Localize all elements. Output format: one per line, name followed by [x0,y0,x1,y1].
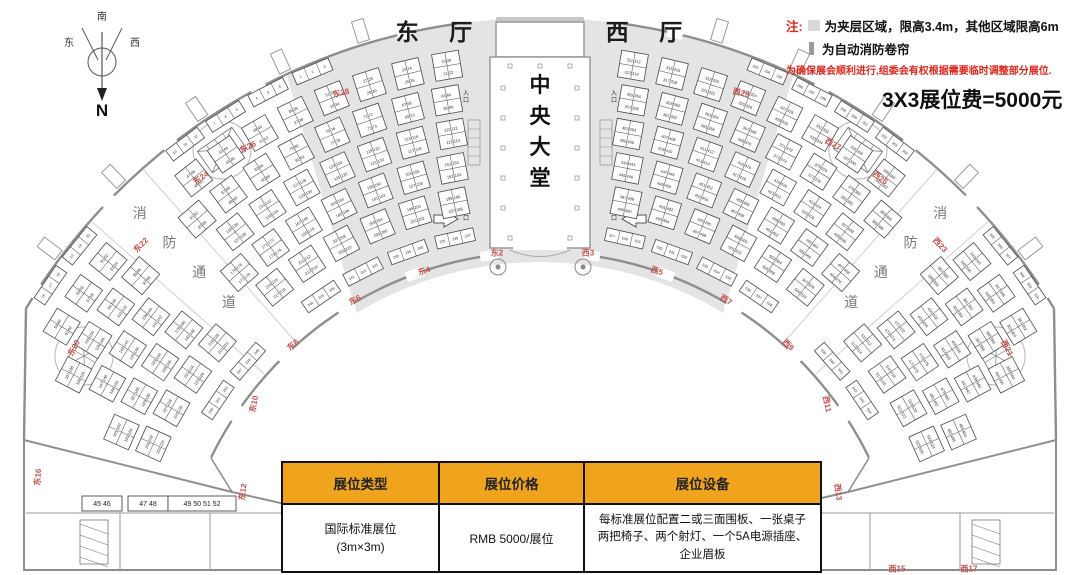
booth-cluster: 63 6465 66 [431,85,462,116]
booth-cluster: 187 188189 190 [121,378,158,415]
booth-cluster: 147 148149 150 [89,365,126,402]
booth-cluster: 375 376377 378 [800,153,837,190]
loading-dock [37,237,62,260]
loading-dock [711,19,729,44]
booth-type-cell: 国际标准展位 (3m×3m) [282,504,439,572]
booth-cluster: 171 172173 174 [252,229,290,267]
booth-cluster: 391 392393 394 [945,288,983,326]
svg-text:通: 通 [874,264,888,280]
booth-fee-text: 3X3展位费=5000元 [882,84,1062,114]
booth-cluster: 379 380381 382 [833,175,871,213]
notes-block: 注: 为夹层区域，限高3.4m，其他区域限高6m 为自动消防卷帘 为确保展会顺利… [786,16,1078,77]
loading-dock [186,96,208,121]
booth-cluster: 219 220221 222 [198,324,236,362]
east-hall-title: 东 厅 [396,13,484,47]
vestibule [496,22,584,57]
booth-cluster: 83 8485 86 [243,153,280,190]
booth-cluster: 511 512513 514 [844,324,882,362]
booth-cluster: 195 196197 198 [438,187,470,219]
booth-cluster: 507 508509 510 [786,268,824,306]
booth-cluster: 523 524525 526 [909,426,945,462]
loading-dock [352,19,370,44]
note-prefix: 注: [786,16,803,35]
booth-cluster: 175 176177 178 [220,253,258,291]
booth-cluster: 487 488489 490 [610,187,642,219]
loading-dock [955,164,979,188]
svg-text:口: 口 [611,215,617,222]
svg-text:消: 消 [933,205,947,221]
gate-label-西3: 西3 [582,248,594,259]
svg-text:49 50 51 52: 49 50 51 52 [184,501,221,508]
booth-row: 250251252 [202,380,235,420]
compass-needle-icon [97,88,107,101]
booth-cluster: 167 168169 170 [285,207,322,244]
booth-cluster: 463 464465 466 [790,229,828,267]
booth-cluster: 227 228229 230 [153,390,190,427]
booth-cluster: 23 2425 26 [392,57,425,90]
note-mezzanine: 为夹层区域，限高3.4m，其他区域限高6m [825,16,1059,35]
gate-label-东16: 东16 [32,468,44,486]
booth-cluster: 515 516517 518 [868,356,906,394]
booth-cluster: 99 100101 102 [97,288,135,326]
booth-cluster: 403 404405 406 [613,118,644,149]
booth-cluster: 183 184185 186 [141,343,178,380]
svg-text:45 46: 45 46 [93,501,111,508]
svg-text:防: 防 [904,234,918,250]
booth-cluster: 459 460461 462 [757,207,794,244]
exhibition-floorplan: 消防通道消防通道入口入口入口入口45 4647 4849 50 51 52123… [0,0,1080,575]
booth-cluster: 139 140141 142 [132,298,170,336]
booth-cluster: 427 428429 430 [826,213,864,251]
loading-dock [1018,237,1043,260]
compass: 南 东 西 N [52,8,152,118]
svg-text:口: 口 [611,97,617,104]
booth-cluster: 311 312313 314 [617,50,648,81]
svg-text:口: 口 [463,97,469,104]
booth-cluster: 231 232233 234 [136,426,172,462]
booth-cluster: 387 388389 390 [920,257,958,295]
compass-south-label: 南 [97,10,107,23]
booth-cluster: 471 472473 474 [877,311,915,349]
booth-cluster: 191 192193 194 [104,414,140,450]
booth-row: 542543544 [846,380,879,420]
booth-cluster: 519 520521 522 [890,390,927,427]
booth-cluster: 95 9697 98 [122,257,160,295]
booth-cluster: 55 5657 58 [65,274,103,312]
compass-west-label: 西 [130,38,140,49]
table-row: 国际标准展位 (3m×3m) RMB 5000/展位 每标准展位配置二或三面围板… [282,504,821,572]
note-warning: 为确保展会顺利进行,组委会有权根据需要临时调整部分展位. [786,62,1078,77]
booth-cluster: 419 420421 422 [760,169,797,206]
booth-cluster: 211 212213 214 [288,245,325,282]
svg-text:入: 入 [611,90,617,97]
booth-cluster: 91 9293 94 [178,200,216,238]
booth-row: 536537538 [739,280,779,313]
booth: 45 46 [82,496,122,511]
booth-cluster: 479 480481 482 [922,378,959,415]
booth-cluster: 111 112113 114 [436,118,467,149]
booth-equipment-cell: 每标准展位配置二或三面围板、一张桌子两把椅子、两个射灯、一个5A电源插座、企业眉… [584,504,821,572]
table-header-type: 展位类型 [282,462,439,504]
svg-text:47 48: 47 48 [139,501,157,508]
booth-type-line2: (3m×3m) [284,538,437,556]
svg-text:口: 口 [463,215,469,222]
booth-cluster: 87 8889 90 [210,175,248,213]
svg-text:通: 通 [192,264,206,280]
booth-row: 244245246 [301,280,341,313]
booth-cluster: 423 424425 426 [794,190,831,227]
svg-text:入: 入 [463,90,469,97]
booth-price-cell: RMB 5000/展位 [439,504,584,572]
booth-cluster: 19 2021 22 [432,50,463,81]
booth-cluster: 355 356357 358 [617,85,648,116]
booth-cluster: 503 504505 506 [754,245,791,282]
mezzanine-swatch-icon [808,20,820,31]
gate-label-东2: 东2 [491,248,503,259]
central-hall-title: 中 央 大 堂 [530,70,551,194]
gate-label-西17: 西17 [961,564,978,575]
gate-label-西13: 西13 [831,483,844,501]
gate-label-西15: 西15 [889,564,906,575]
gate-label-东12: 东12 [236,483,249,501]
booth-cluster: 475 476477 478 [901,343,938,380]
booth-cluster: 215 216217 218 [256,268,294,306]
west-hall-title: 西 厅 [606,13,694,47]
svg-text:道: 道 [222,294,236,310]
compass-n-label: N [96,101,108,118]
booth-cluster: 467 468469 470 [822,253,860,291]
loading-dock [102,164,126,188]
note-shutter: 为自动消防卷帘 [822,39,910,58]
booth-cluster: 223 224225 226 [174,356,212,394]
table-header-equipment: 展位设备 [584,462,821,504]
loading-dock [270,49,290,74]
svg-text:消: 消 [133,205,147,221]
booth-info-table: 展位类型 展位价格 展位设备 国际标准展位 (3m×3m) RMB 5000/展… [281,461,822,573]
booth-cluster: 151 152153 154 [437,153,469,185]
fire-shutter-swatch-icon [809,42,814,55]
booth-cluster: 431 432433 434 [910,298,948,336]
svg-text:道: 道 [844,294,858,310]
booth-cluster: 143 144145 146 [109,331,146,368]
booth-cluster: 347 348349 350 [977,274,1015,312]
booth-cluster: 127 128129 130 [283,169,320,206]
booth-cluster: 439 440441 442 [954,365,991,402]
booth-cluster: 179 180181 182 [165,311,203,349]
table-header-price: 展位价格 [439,462,584,504]
booth-cluster: 383 384385 386 [864,200,902,238]
compass-east-label: 东 [64,36,74,49]
booth-cluster: 483 484485 486 [941,414,977,450]
booth: 47 48 [128,496,168,511]
booth: 49 50 51 52 [168,496,236,511]
booth-cluster: 435 436437 438 [934,331,971,368]
booth-cluster: 443 444445 446 [612,153,644,185]
booth-cluster: 315 316317 318 [656,57,689,90]
booth-cluster: 135 136137 138 [216,213,254,251]
booth-cluster: 131 132133 134 [249,190,286,227]
svg-text:防: 防 [162,234,176,250]
booth-type-line1: 国际标准展位 [284,520,437,538]
